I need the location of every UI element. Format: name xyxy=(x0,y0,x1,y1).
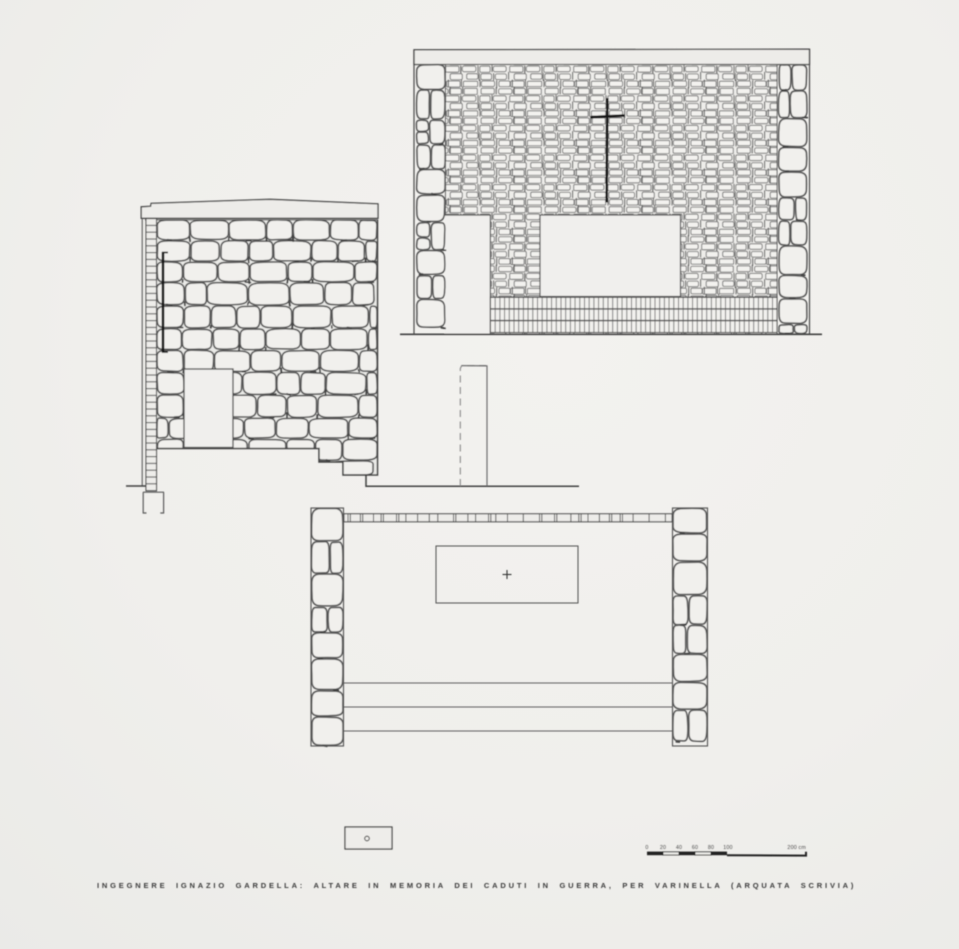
svg-text:100: 100 xyxy=(723,845,732,851)
svg-text:0: 0 xyxy=(645,845,648,851)
svg-text:60: 60 xyxy=(692,845,698,851)
svg-text:20: 20 xyxy=(660,845,666,851)
svg-text:200 cm: 200 cm xyxy=(787,845,806,851)
svg-text:INGEGNERE IGNAZIO GARDELLA: AL: INGEGNERE IGNAZIO GARDELLA: ALTARE IN ME… xyxy=(97,881,856,890)
svg-text:40: 40 xyxy=(676,845,682,851)
svg-text:80: 80 xyxy=(708,845,714,851)
